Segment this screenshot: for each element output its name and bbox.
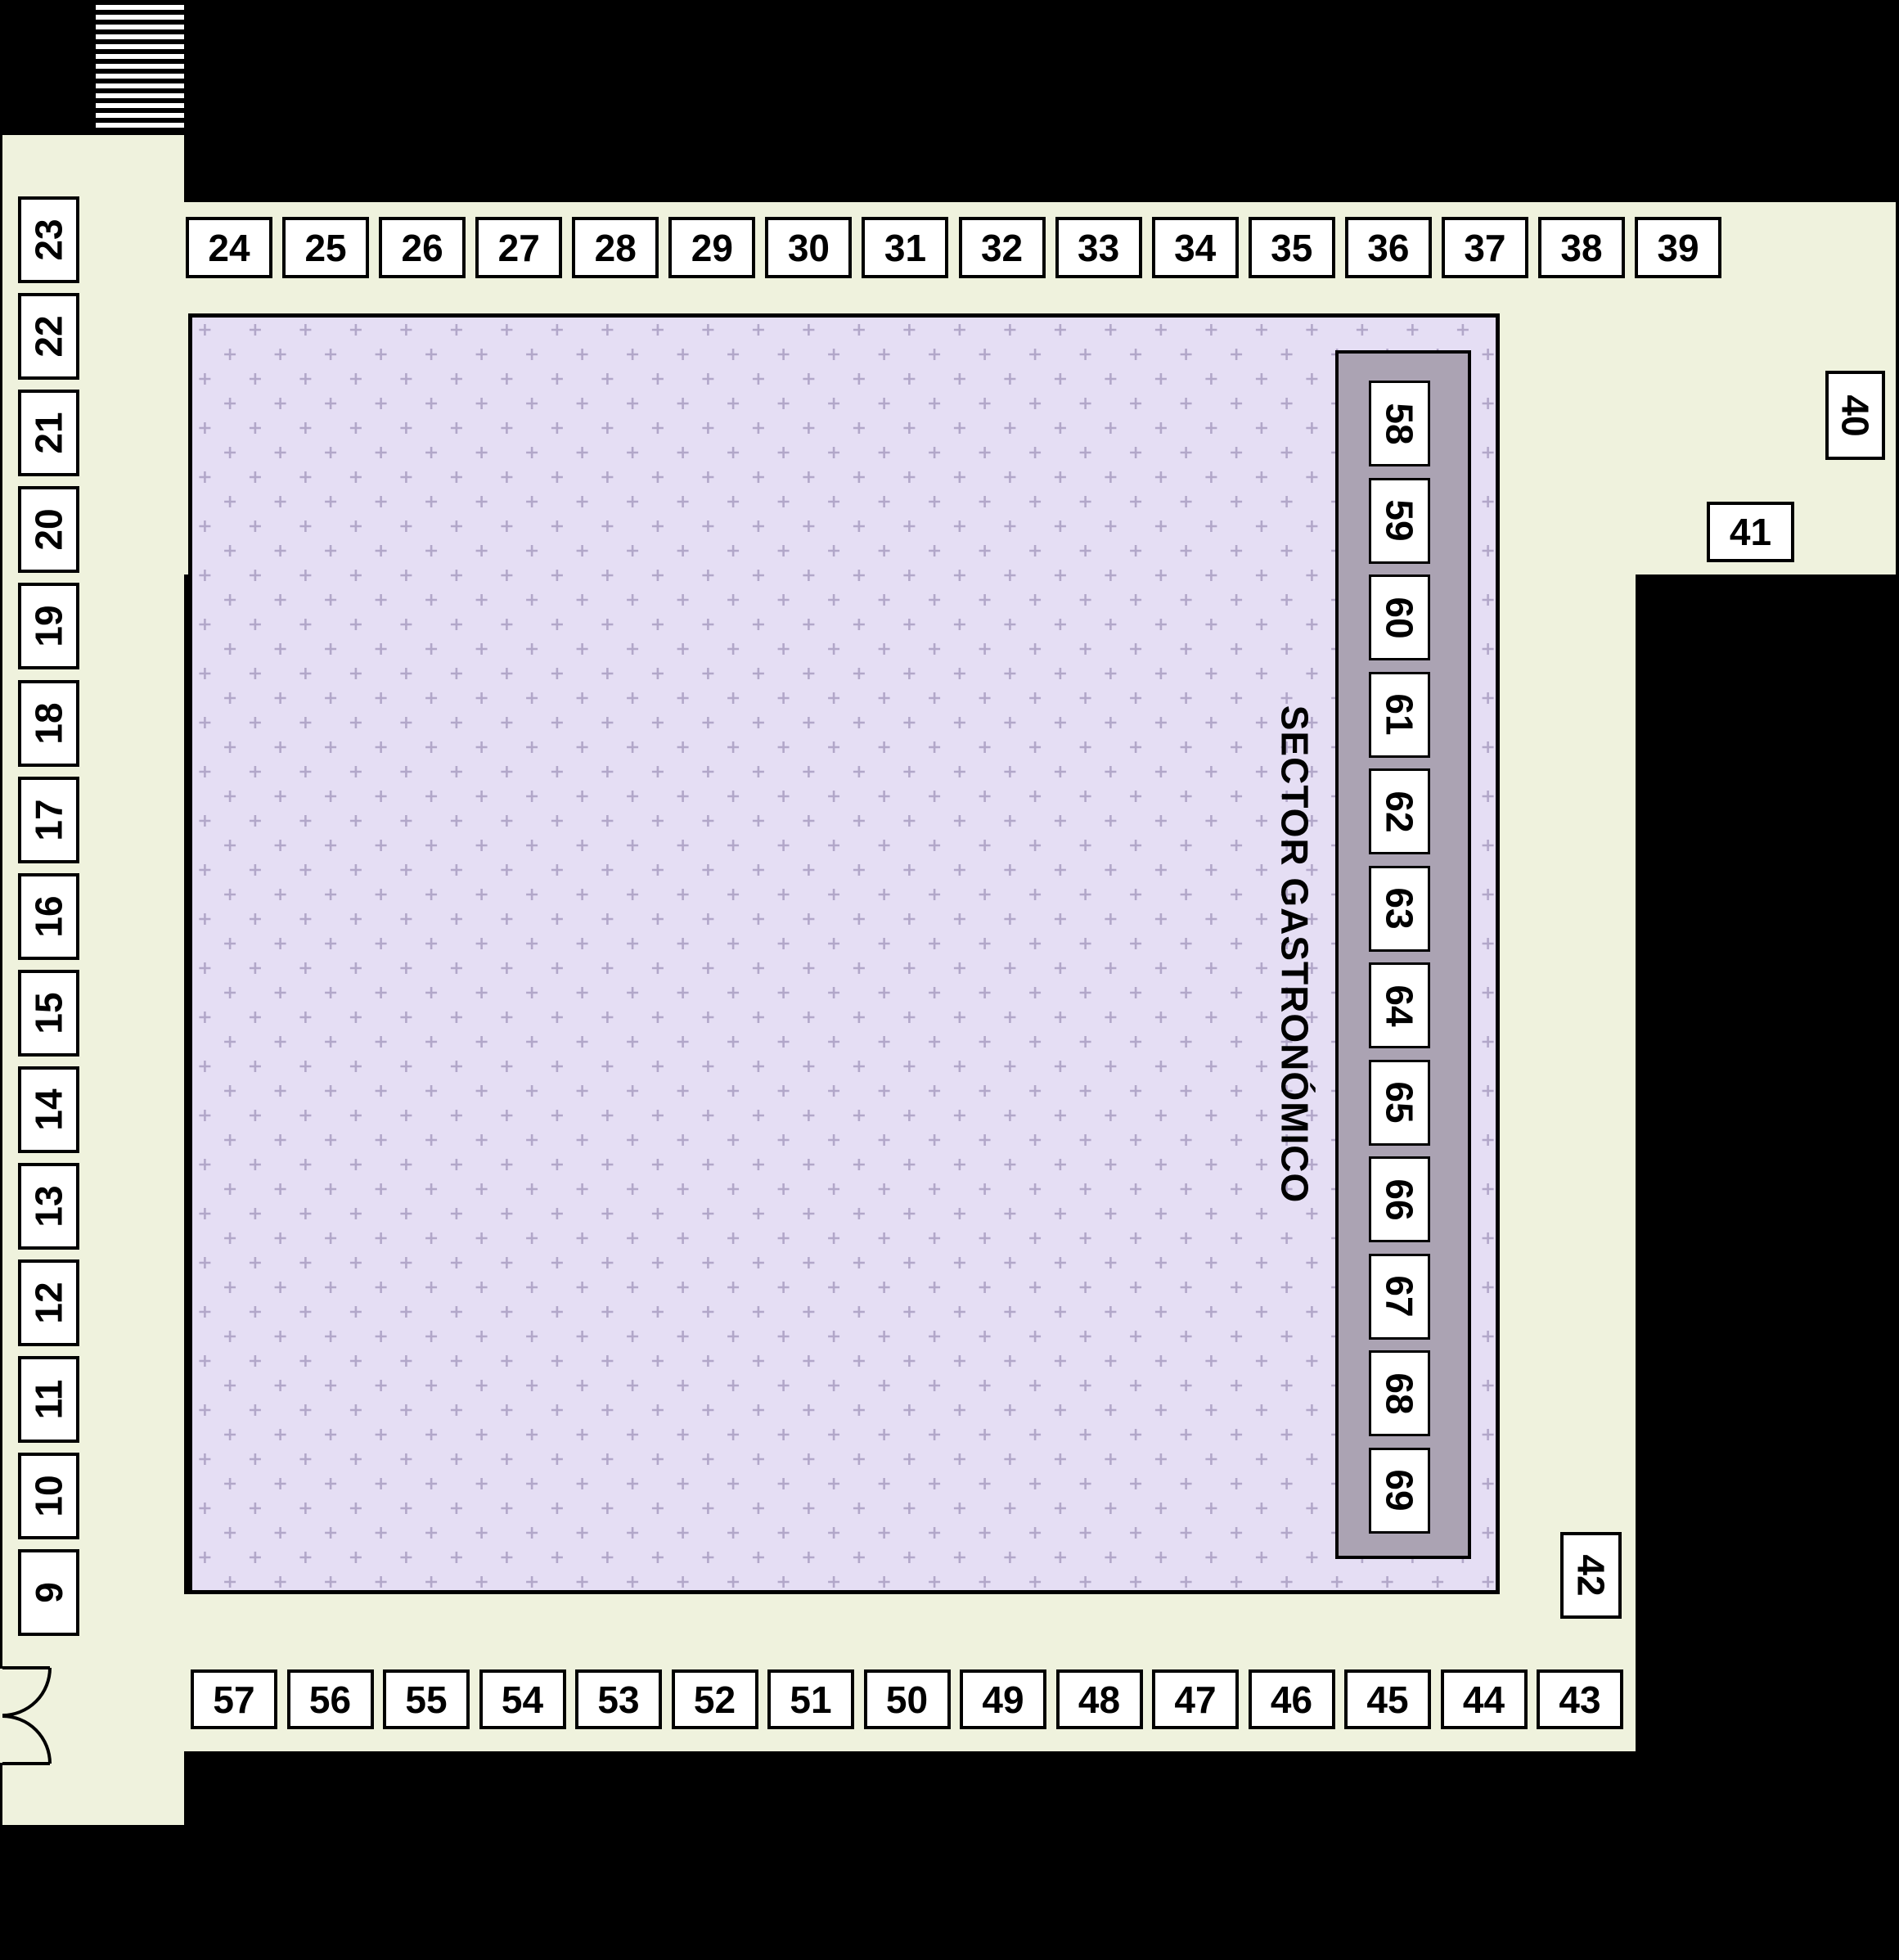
stall-number: 61: [1380, 693, 1418, 735]
stall-65: 65: [1369, 1060, 1430, 1146]
stall-number: 31: [884, 229, 926, 267]
stall-46: 46: [1249, 1669, 1335, 1729]
stall-20: 20: [18, 486, 79, 573]
stall-number: 27: [498, 229, 540, 267]
stall-number: 63: [1380, 887, 1418, 929]
stall-28: 28: [572, 217, 659, 278]
stall-30: 30: [765, 217, 852, 278]
stall-number: 52: [694, 1681, 736, 1719]
stall-number: 60: [1380, 597, 1418, 638]
stall-12: 12: [18, 1259, 79, 1346]
stall-number: 54: [502, 1681, 543, 1719]
floor-plan: SECTOR GASTRONÓMICO 23222120191817161514…: [0, 0, 1899, 1960]
stall-number: 30: [788, 229, 830, 267]
stall-64: 64: [1369, 962, 1430, 1048]
stall-number: 66: [1380, 1178, 1418, 1220]
stall-22: 22: [18, 293, 79, 380]
stall-10: 10: [18, 1453, 79, 1539]
stall-26: 26: [379, 217, 466, 278]
stall-54: 54: [479, 1669, 566, 1729]
stall-58: 58: [1369, 381, 1430, 466]
stall-52: 52: [672, 1669, 758, 1729]
stall-number: 68: [1380, 1372, 1418, 1414]
stall-57: 57: [191, 1669, 277, 1729]
stall-63: 63: [1369, 866, 1430, 952]
stall-16: 16: [18, 873, 79, 960]
stall-45: 45: [1344, 1669, 1431, 1729]
stall-14: 14: [18, 1066, 79, 1153]
stall-number: 65: [1380, 1081, 1418, 1123]
stall-number: 49: [982, 1681, 1024, 1719]
stall-34: 34: [1152, 217, 1239, 278]
stall-number: 43: [1559, 1681, 1600, 1719]
stall-number: 25: [304, 229, 346, 267]
stall-number: 18: [29, 702, 67, 744]
stall-39: 39: [1635, 217, 1721, 278]
stall-number: 22: [29, 316, 67, 358]
stall-42: 42: [1560, 1532, 1622, 1619]
stall-number: 42: [1572, 1554, 1609, 1596]
stall-number: 21: [29, 412, 67, 454]
stairs-hatch: [96, 0, 184, 131]
stall-15: 15: [18, 970, 79, 1057]
stall-number: 51: [790, 1681, 831, 1719]
stall-number: 41: [1730, 513, 1771, 551]
stall-number: 55: [405, 1681, 447, 1719]
stall-48: 48: [1056, 1669, 1143, 1729]
stall-19: 19: [18, 583, 79, 669]
stall-number: 32: [981, 229, 1023, 267]
stall-number: 58: [1380, 403, 1418, 444]
stall-38: 38: [1538, 217, 1625, 278]
stall-44: 44: [1441, 1669, 1528, 1729]
corridor-right: [1500, 574, 1636, 1594]
stall-number: 69: [1380, 1469, 1418, 1511]
stall-number: 15: [29, 992, 67, 1034]
stall-31: 31: [862, 217, 948, 278]
stall-59: 59: [1369, 478, 1430, 564]
stall-36: 36: [1345, 217, 1432, 278]
stall-40: 40: [1825, 371, 1885, 460]
stall-number: 45: [1366, 1681, 1408, 1719]
stall-number: 67: [1380, 1275, 1418, 1317]
stall-number: 34: [1174, 229, 1216, 267]
stall-number: 59: [1380, 499, 1418, 541]
stall-21: 21: [18, 390, 79, 476]
stall-number: 17: [29, 799, 67, 840]
stall-number: 10: [29, 1476, 67, 1517]
stall-number: 36: [1367, 229, 1409, 267]
stall-number: 26: [402, 229, 443, 267]
stall-number: 9: [30, 1583, 68, 1604]
stall-53: 53: [575, 1669, 662, 1729]
stall-56: 56: [287, 1669, 374, 1729]
stall-35: 35: [1249, 217, 1335, 278]
stall-50: 50: [864, 1669, 951, 1729]
stall-66: 66: [1369, 1156, 1430, 1242]
stall-number: 47: [1174, 1681, 1216, 1719]
stall-number: 33: [1078, 229, 1119, 267]
stall-number: 19: [29, 606, 67, 647]
stall-number: 20: [29, 509, 67, 551]
stall-29: 29: [668, 217, 755, 278]
stall-number: 44: [1463, 1681, 1505, 1719]
stall-number: 16: [29, 895, 67, 937]
sector-gastronomico-label: SECTOR GASTRONÓMICO: [1257, 714, 1332, 1195]
stall-11: 11: [18, 1356, 79, 1443]
stall-number: 37: [1464, 229, 1505, 267]
stall-25: 25: [282, 217, 369, 278]
stall-number: 11: [29, 1380, 67, 1420]
stall-number: 14: [29, 1088, 67, 1130]
stall-32: 32: [959, 217, 1046, 278]
stall-23: 23: [18, 196, 79, 283]
stall-number: 24: [208, 229, 250, 267]
stall-55: 55: [383, 1669, 470, 1729]
stall-number: 28: [595, 229, 637, 267]
stall-number: 62: [1380, 791, 1418, 832]
stall-33: 33: [1055, 217, 1142, 278]
stall-68: 68: [1369, 1350, 1430, 1436]
sector-label-text: SECTOR GASTRONÓMICO: [1272, 705, 1316, 1204]
stall-number: 50: [886, 1681, 928, 1719]
stall-17: 17: [18, 777, 79, 863]
stall-number: 12: [29, 1282, 67, 1324]
stall-49: 49: [960, 1669, 1046, 1729]
stall-number: 13: [29, 1185, 67, 1227]
stall-61: 61: [1369, 672, 1430, 758]
stall-number: 57: [213, 1681, 254, 1719]
stall-43: 43: [1537, 1669, 1623, 1729]
stall-9: 9: [18, 1549, 79, 1636]
stall-51: 51: [767, 1669, 854, 1729]
stall-24: 24: [186, 217, 272, 278]
stall-number: 39: [1657, 229, 1699, 267]
stall-41: 41: [1707, 502, 1794, 562]
stall-number: 56: [309, 1681, 351, 1719]
stall-13: 13: [18, 1163, 79, 1250]
stall-number: 46: [1271, 1681, 1312, 1719]
stall-47: 47: [1152, 1669, 1239, 1729]
stall-18: 18: [18, 680, 79, 767]
stall-number: 48: [1078, 1681, 1120, 1719]
stall-69: 69: [1369, 1448, 1430, 1534]
stall-number: 38: [1560, 229, 1602, 267]
stall-67: 67: [1369, 1254, 1430, 1340]
double-door-icon: [0, 1661, 57, 1772]
stall-number: 29: [691, 229, 733, 267]
stall-number: 35: [1271, 229, 1312, 267]
stall-number: 53: [597, 1681, 639, 1719]
stall-37: 37: [1442, 217, 1528, 278]
stall-number: 23: [29, 219, 67, 260]
stall-62: 62: [1369, 768, 1430, 854]
stall-number: 64: [1380, 985, 1418, 1026]
stall-60: 60: [1369, 574, 1430, 660]
stall-27: 27: [475, 217, 562, 278]
stall-number: 40: [1836, 394, 1874, 436]
